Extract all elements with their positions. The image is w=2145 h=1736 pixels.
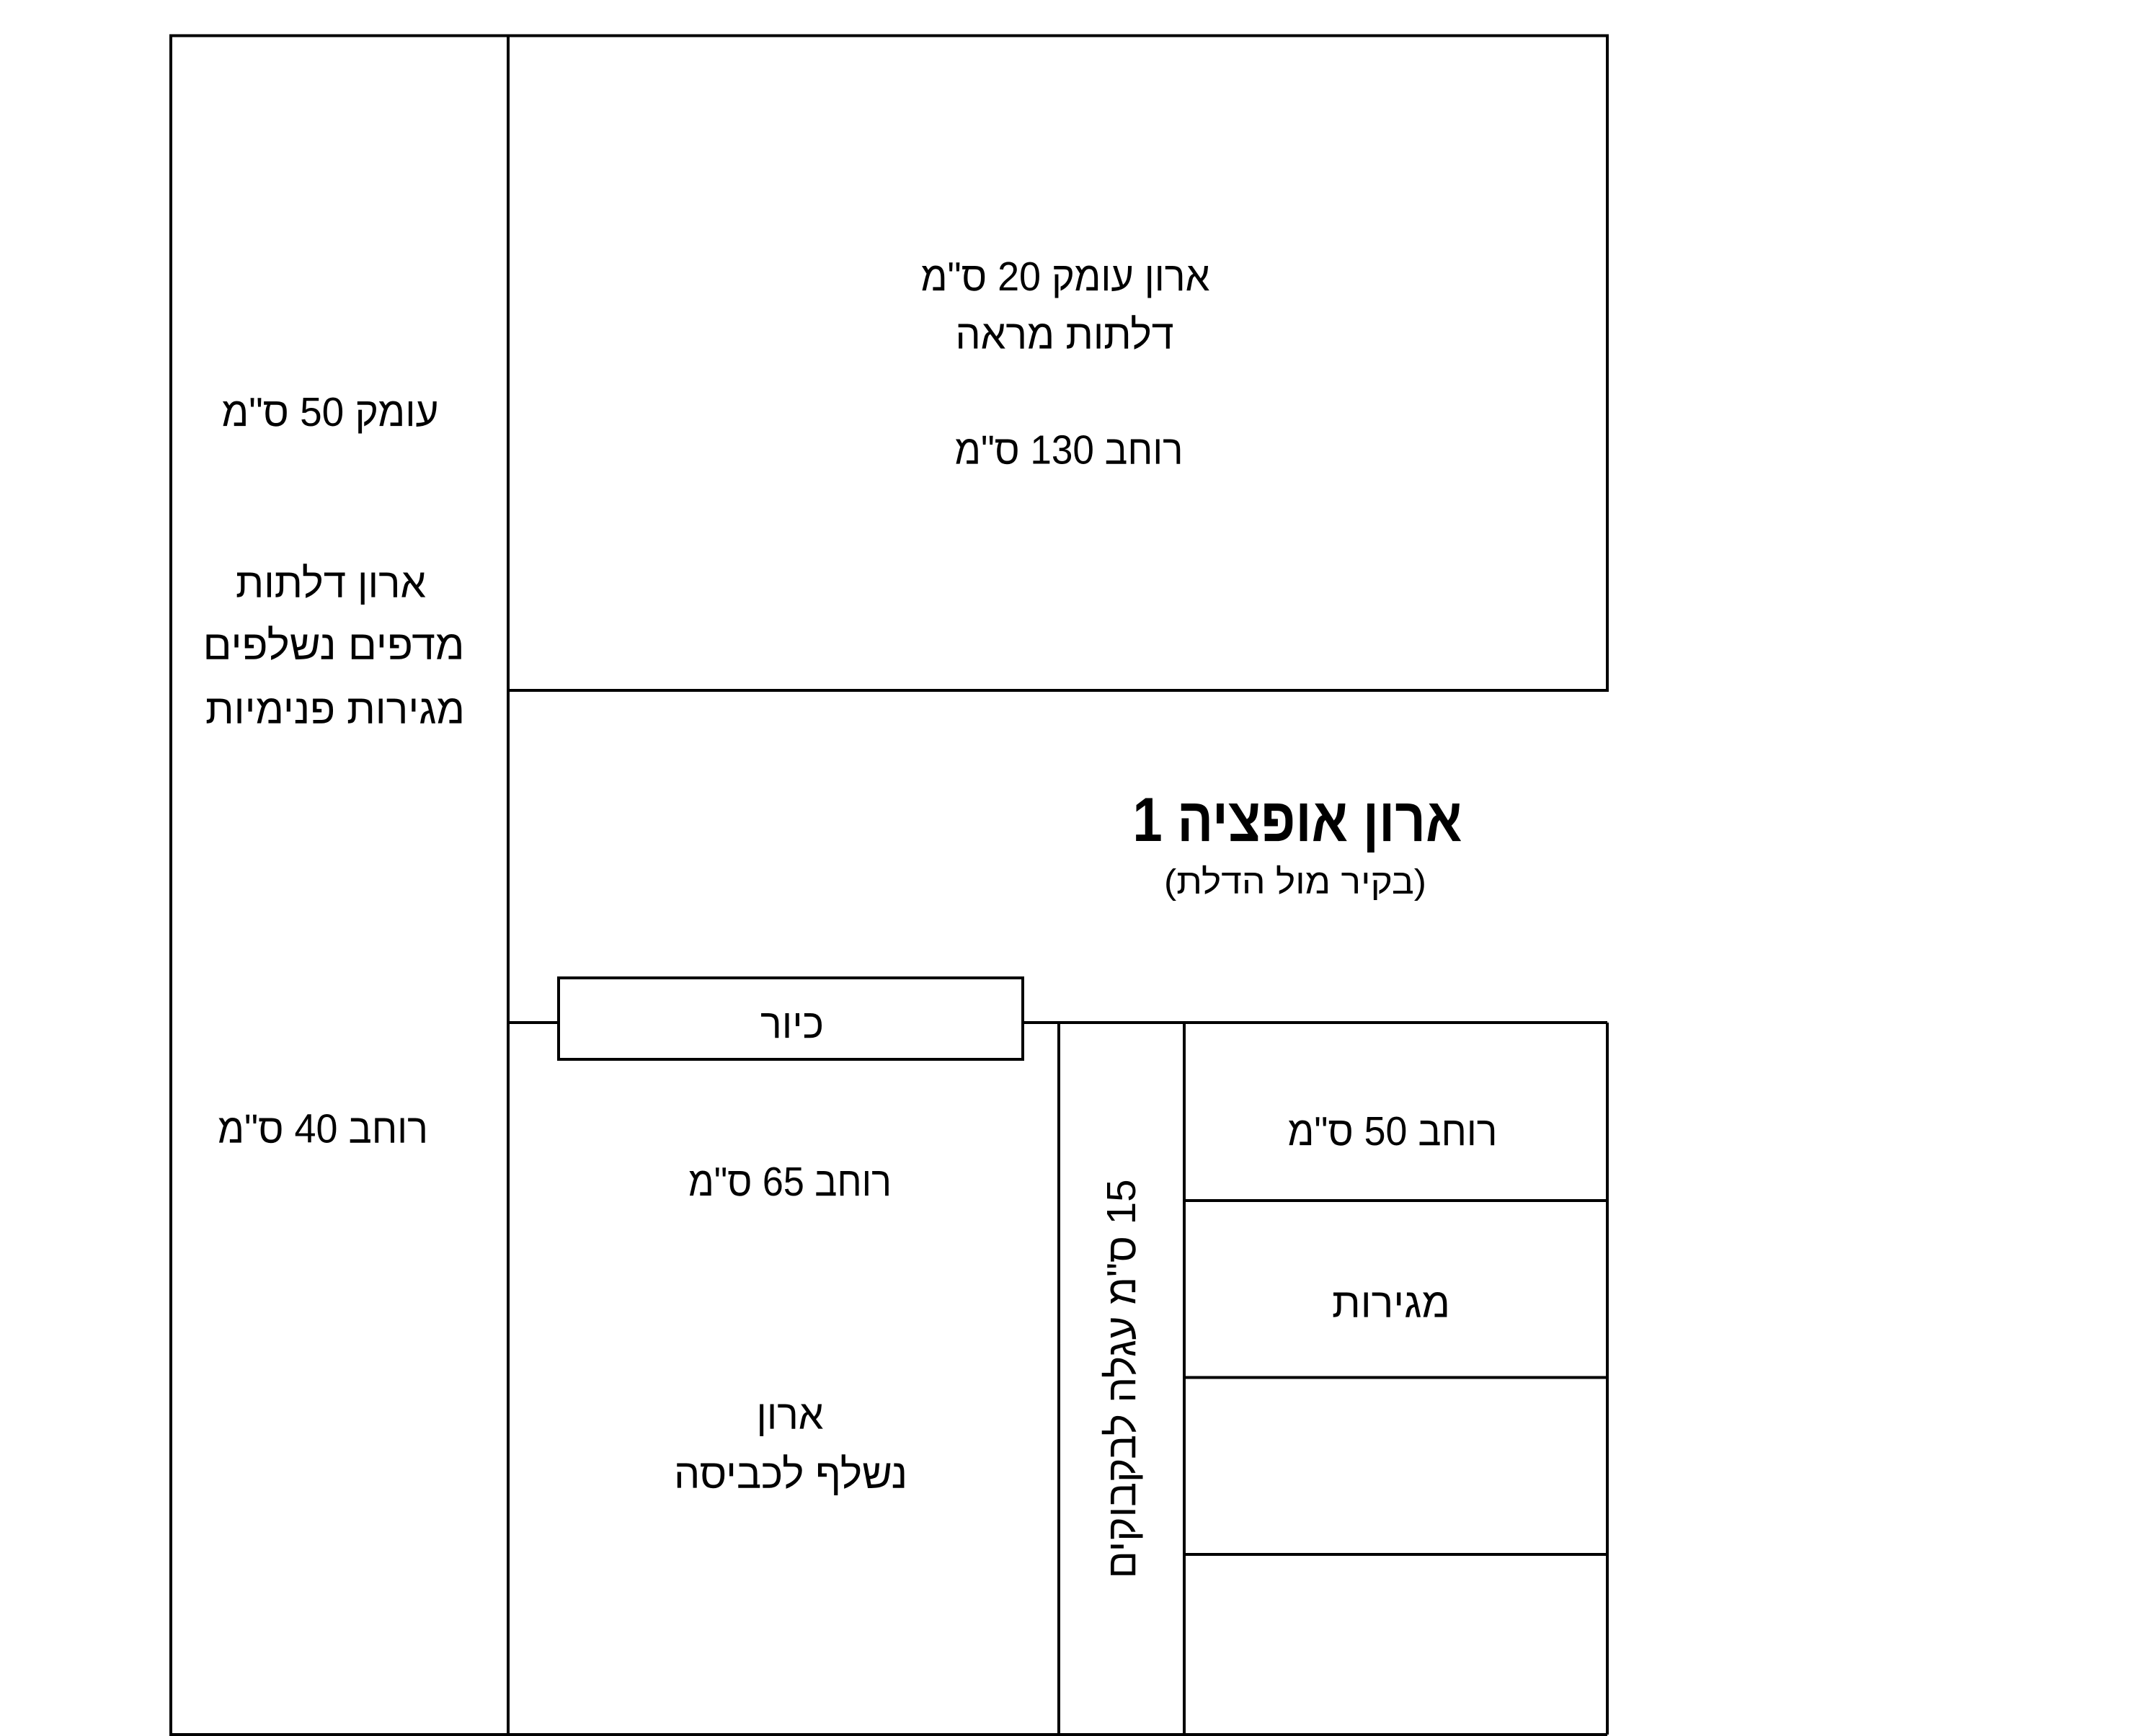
- svg-text:ארון אופציה 1: ארון אופציה 1: [1132, 785, 1462, 855]
- svg-text:רוחב 50 ס"מ: רוחב 50 ס"מ: [1288, 1108, 1498, 1154]
- svg-text:נשלף לכביסה: נשלף לכביסה: [674, 1451, 907, 1497]
- svg-text:רוחב 65 ס"מ: רוחב 65 ס"מ: [688, 1159, 892, 1205]
- svg-text:ארון עומק 20 ס"מ: ארון עומק 20 ס"מ: [921, 254, 1210, 300]
- svg-text:מגירות: מגירות: [1332, 1281, 1450, 1327]
- svg-text:דלתות מראה: דלתות מראה: [956, 312, 1174, 358]
- svg-text:ארון: ארון: [757, 1392, 824, 1438]
- svg-text:רוחב 40 ס"מ: רוחב 40 ס"מ: [218, 1105, 428, 1152]
- svg-text:כיור: כיור: [760, 1001, 824, 1047]
- svg-text:מגירות פנימיות: מגירות פנימיות: [205, 687, 465, 733]
- svg-text:מדפים נשלפים: מדפים נשלפים: [203, 623, 465, 669]
- svg-text:(בקיר מול הדלת): (בקיר מול הדלת): [1164, 863, 1426, 902]
- svg-text:15 ס"מ עגלה לבקבוקים: 15 ס"מ עגלה לבקבוקים: [1098, 1180, 1145, 1579]
- svg-text:רוחב 130 ס"מ: רוחב 130 ס"מ: [955, 427, 1183, 473]
- svg-text:עומק 50 ס"מ: עומק 50 ס"מ: [222, 389, 439, 435]
- svg-text:ארון דלתות: ארון דלתות: [236, 561, 426, 607]
